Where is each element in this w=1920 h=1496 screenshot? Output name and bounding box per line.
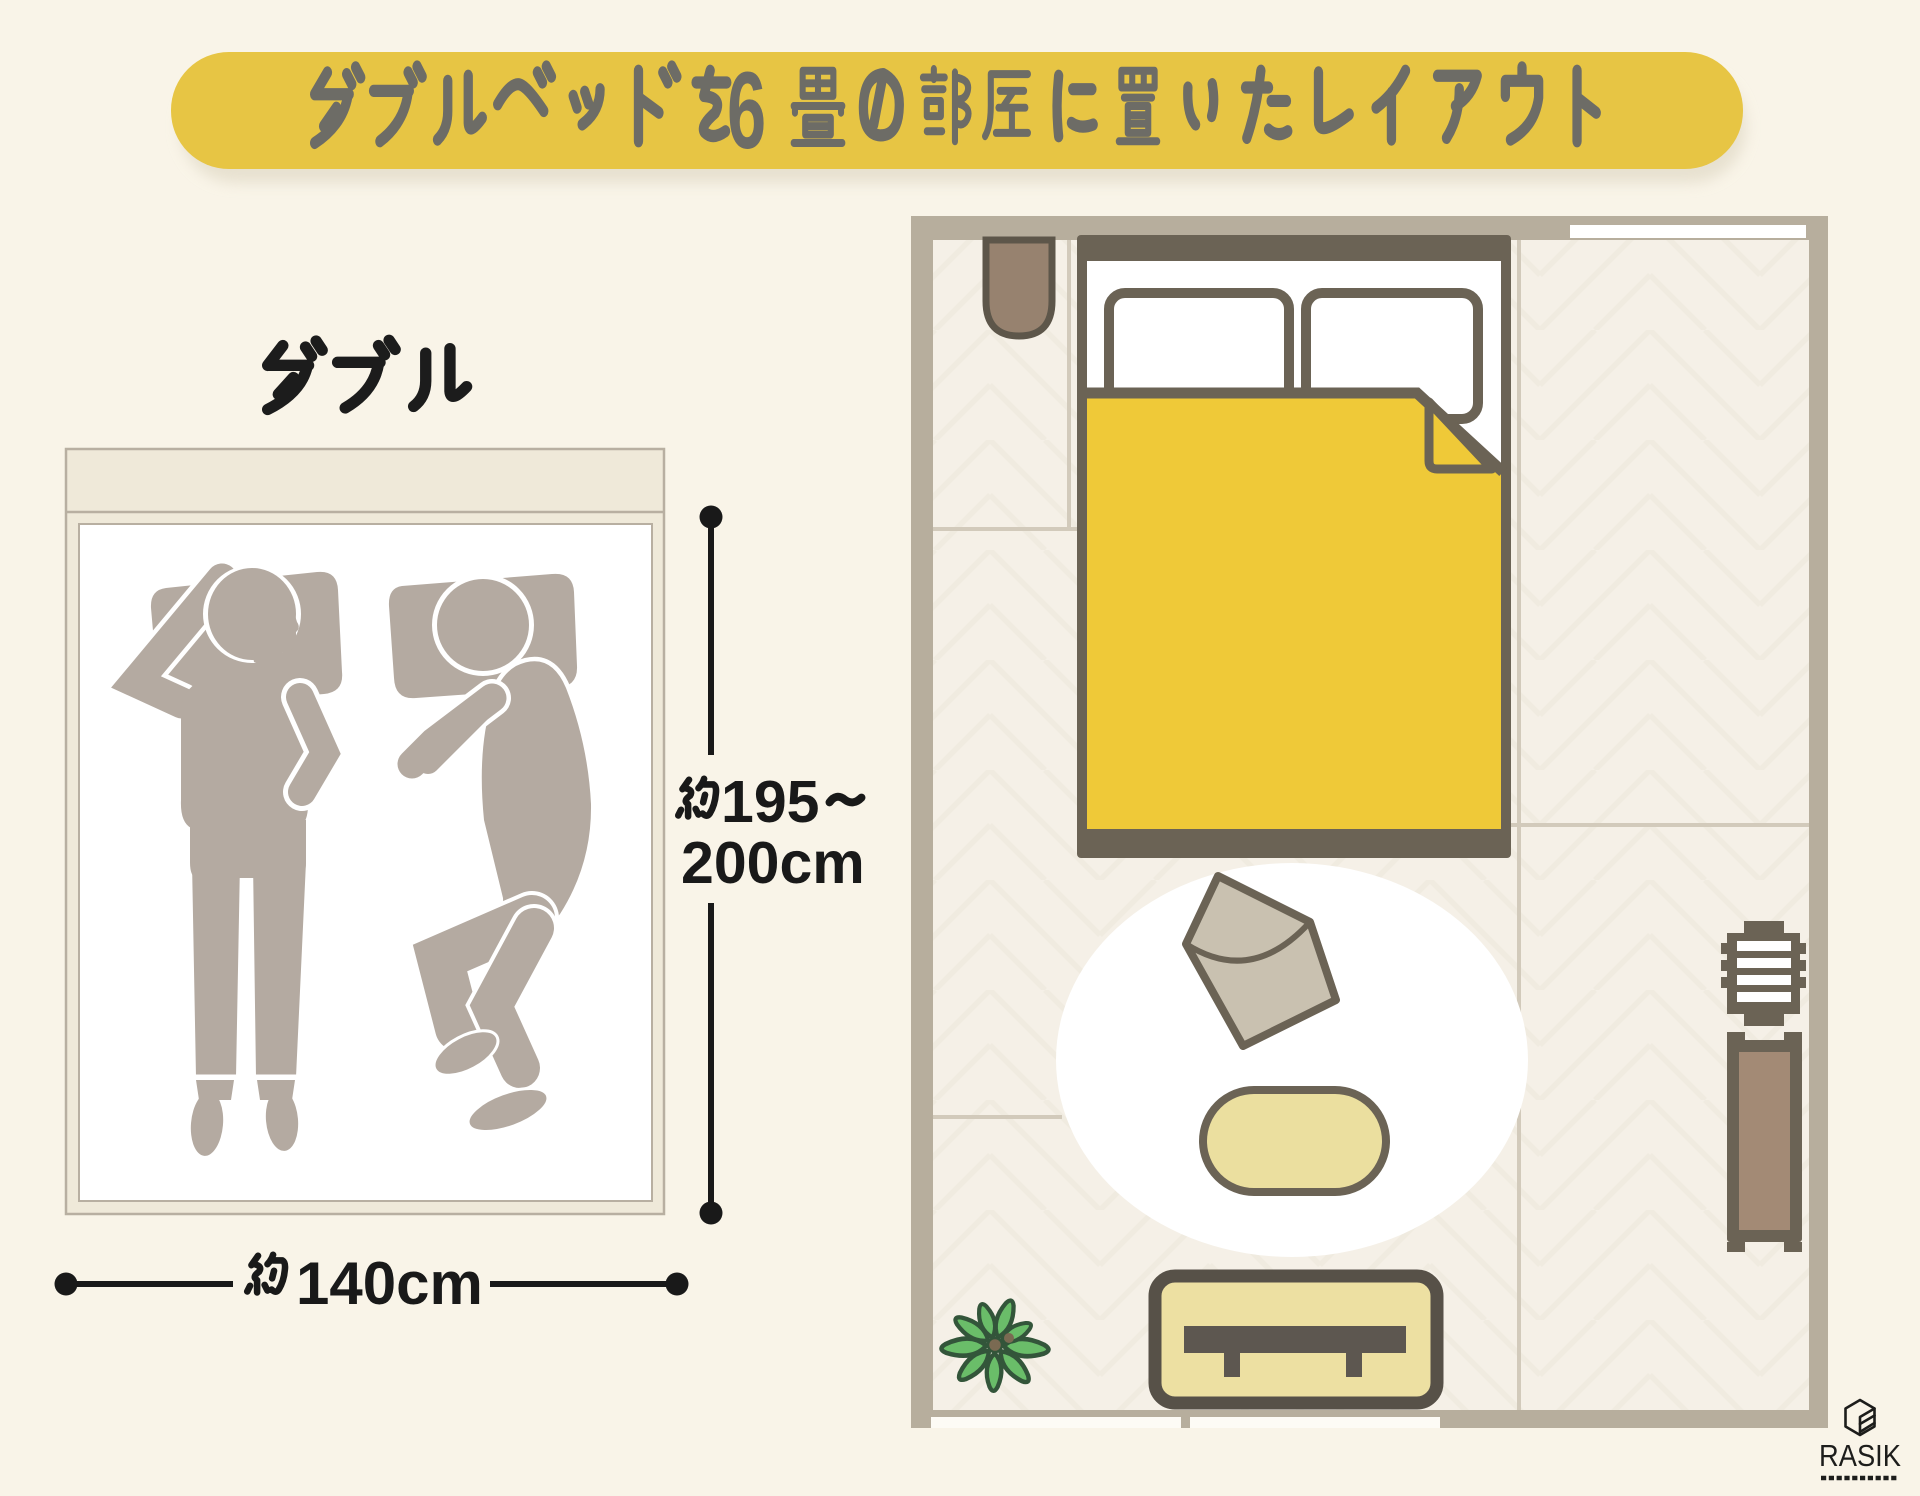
svg-text:RASIK: RASIK [1819, 1438, 1901, 1473]
svg-text:200cm: 200cm [681, 830, 865, 896]
svg-text:195: 195 [721, 769, 819, 835]
svg-text:140cm: 140cm [296, 1250, 483, 1317]
svg-text:6: 6 [727, 48, 766, 172]
